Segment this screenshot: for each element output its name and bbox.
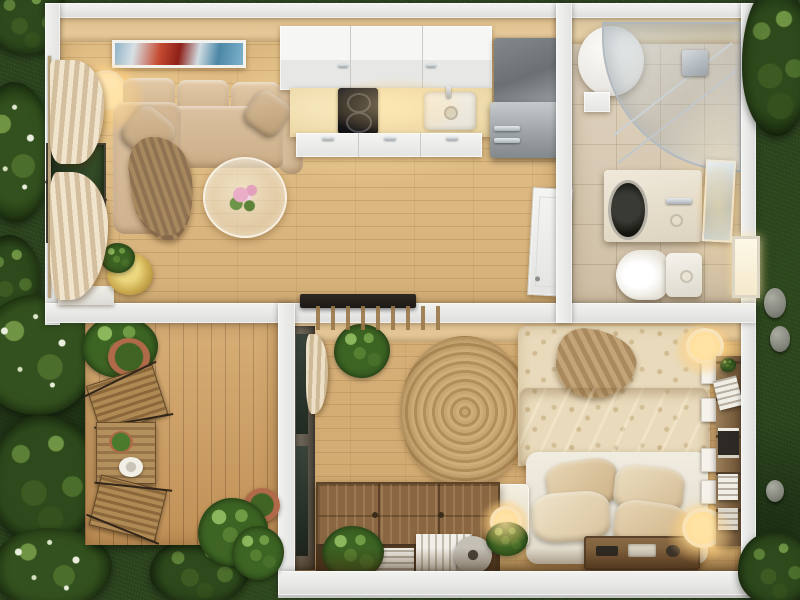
cabinet-seam	[350, 26, 351, 90]
sink-drain	[444, 106, 458, 120]
burner	[346, 112, 372, 133]
cabinet-handle	[322, 137, 334, 140]
wall-kitchen-bathroom	[556, 3, 572, 323]
bookshelf	[716, 356, 742, 546]
cabinet-handle	[384, 137, 396, 140]
cabinet-handle	[338, 64, 348, 67]
vanity-faucet	[666, 198, 692, 204]
heater-valve-box	[584, 92, 610, 112]
flower-bouquet	[223, 175, 267, 219]
kitchen-base-cabinets	[296, 133, 482, 157]
burner	[347, 93, 371, 113]
kitchen-sink	[424, 92, 476, 130]
cabinet-seam	[358, 133, 359, 157]
nightstand-plant	[486, 522, 528, 556]
deck-shrub-2	[232, 526, 284, 580]
bathroom-window	[732, 236, 760, 298]
washing-machine-door	[608, 180, 648, 240]
fridge-tall-cabinet	[494, 38, 562, 104]
fridge-handle	[494, 138, 520, 143]
toilet-bowl	[616, 250, 670, 300]
sink-faucet	[446, 86, 451, 98]
cabinet-handle	[426, 64, 436, 67]
kitchen-upper-cabinets	[280, 26, 492, 90]
stone-right-1	[764, 288, 786, 318]
hanging-plant	[334, 324, 390, 378]
toilet-flush-button	[680, 270, 693, 283]
wall-bottom	[278, 571, 756, 598]
stone-right-3	[766, 480, 784, 502]
toilet	[616, 250, 702, 300]
refrigerator	[490, 102, 562, 158]
fridge-handle	[494, 126, 520, 131]
bathroom-mirror	[702, 159, 736, 242]
gold-pot-plant	[107, 253, 153, 295]
shower-rail	[613, 42, 732, 136]
jute-rug	[400, 336, 530, 488]
wall-top	[45, 3, 756, 18]
shelf-book-dark	[718, 428, 739, 458]
toilet-tank	[666, 253, 702, 297]
floor-plan-render	[0, 0, 800, 600]
chest-handle	[438, 512, 444, 518]
shelf-books-stack	[718, 474, 738, 500]
cabinet-handle	[446, 137, 458, 140]
shelf-plant	[720, 358, 736, 372]
shelf-books-white	[713, 376, 744, 411]
coffee-table	[203, 157, 287, 238]
canopy-slats	[316, 306, 442, 330]
table-plate	[119, 457, 143, 477]
vanity-sink-drain	[670, 214, 683, 227]
shelf-books-stack	[718, 508, 738, 530]
cabinet-seam	[420, 133, 421, 157]
bathroom-vanity	[604, 170, 702, 242]
shower-head	[682, 50, 708, 76]
glass-pane	[296, 446, 308, 556]
chest-handle	[372, 512, 378, 518]
stone-right-2	[770, 326, 790, 352]
wall-art-canvas	[115, 43, 243, 65]
cooktop	[338, 88, 378, 134]
wall-art	[112, 40, 246, 68]
table-plant	[109, 431, 133, 453]
cabinet-seam	[422, 26, 423, 90]
bush-bottom-right	[738, 532, 800, 600]
